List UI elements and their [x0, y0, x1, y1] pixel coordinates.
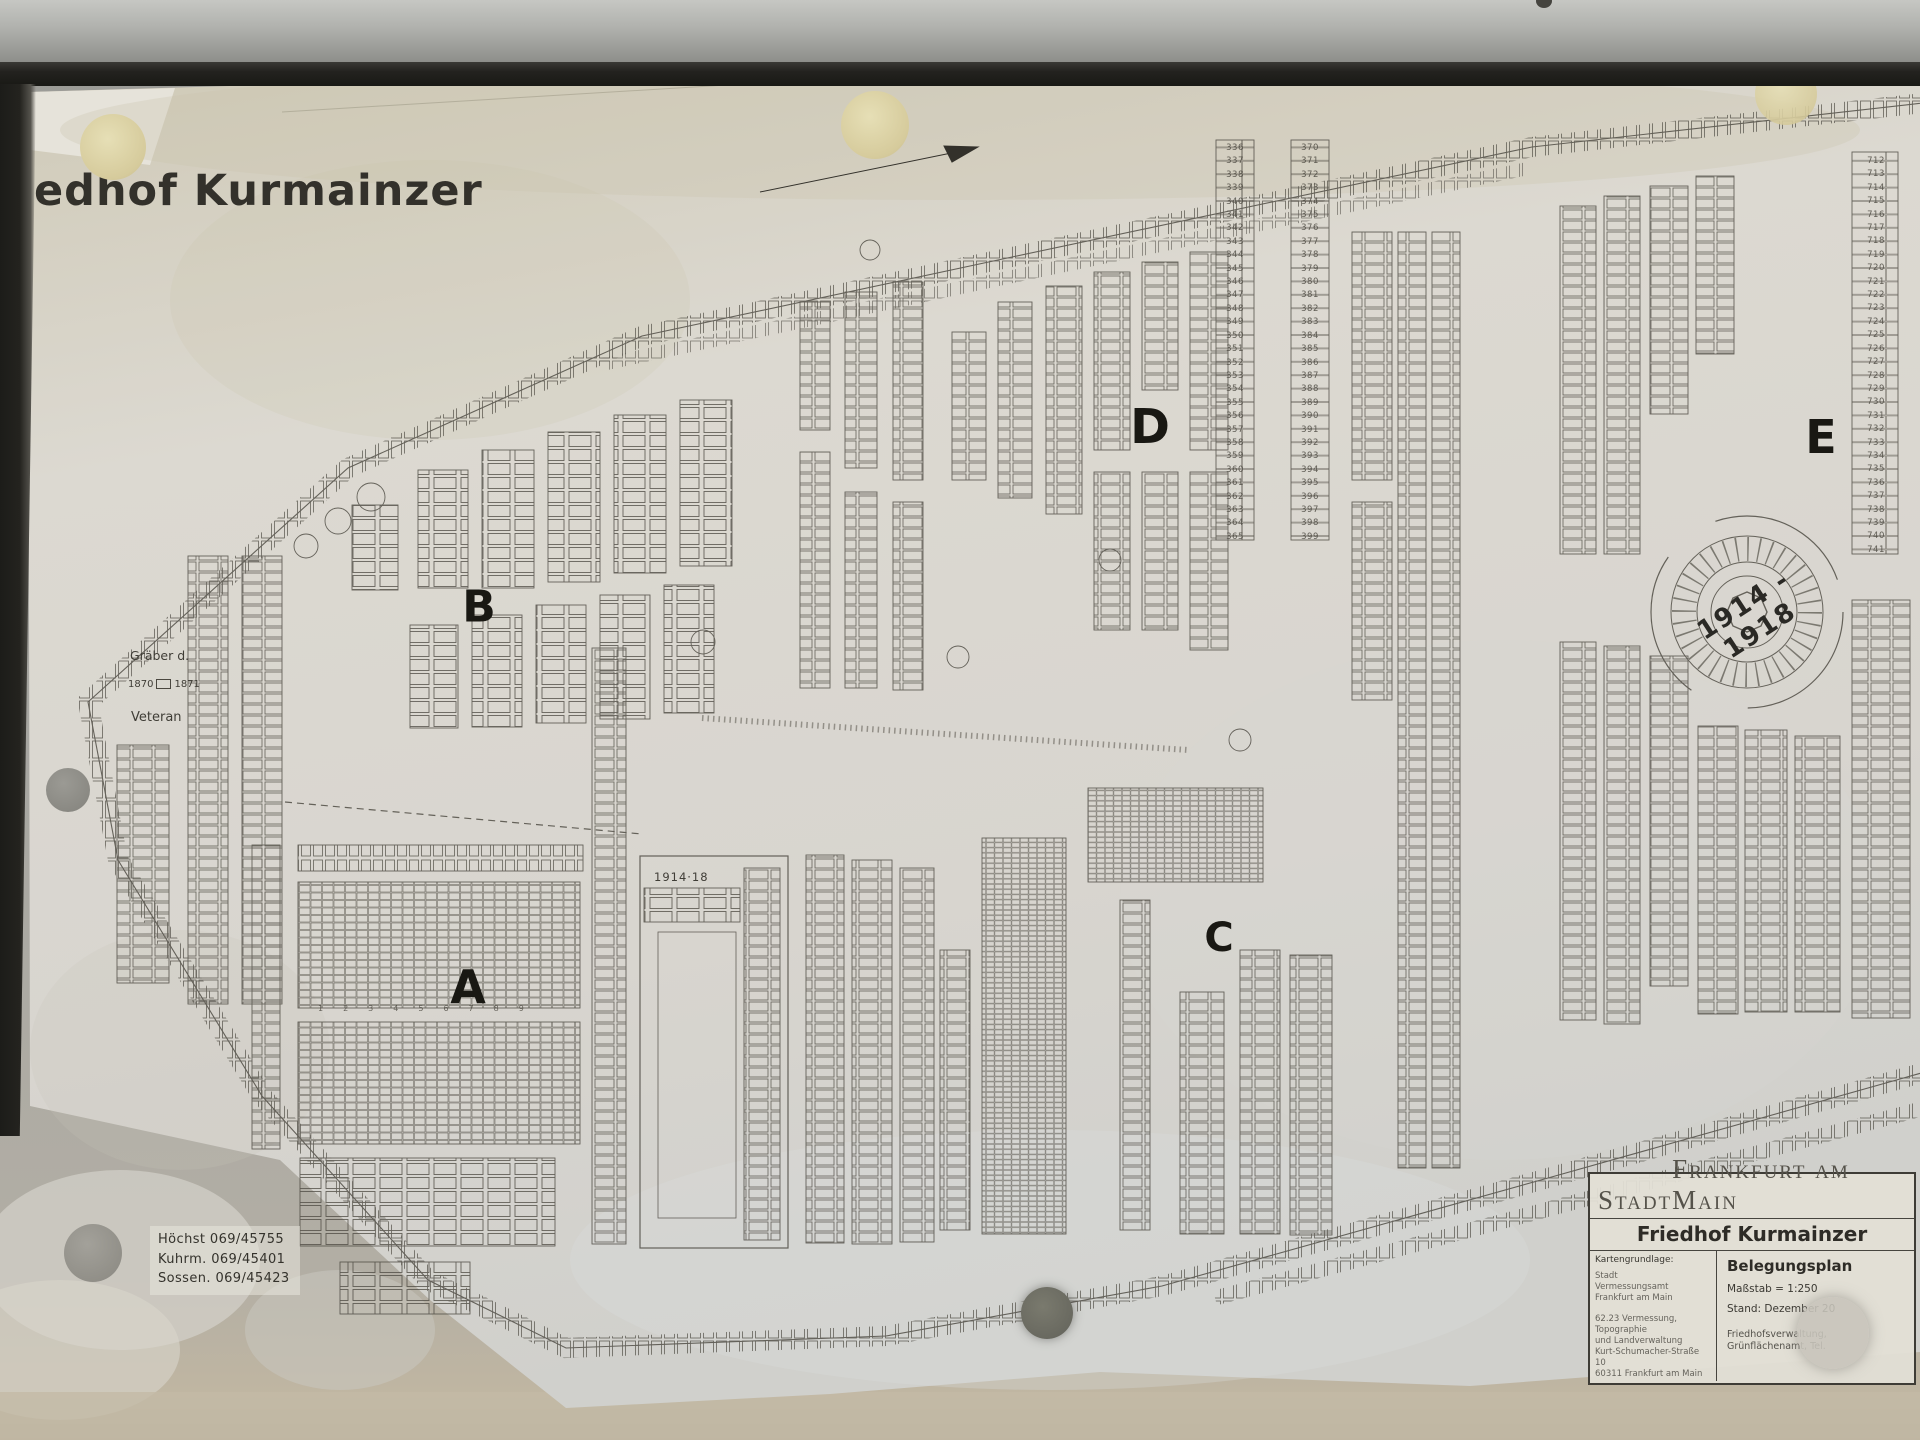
plot-number-column-1: 336 337 338 339 340 341 342 343 344 345 … — [1218, 142, 1252, 544]
legend-map-basis-label: Kartengrundlage: — [1595, 1255, 1711, 1265]
legend-map-basis-lines: Stadt Vermessungsamt Frankfurt am Main — [1595, 1271, 1711, 1304]
adhesive-pad-top-left — [80, 114, 146, 180]
section-label-c: C — [1204, 915, 1233, 961]
legend-map-basis: Kartengrundlage: Stadt Vermessungsamt Fr… — [1590, 1251, 1717, 1381]
war-graves-label: 1914·18 — [654, 870, 709, 884]
veteran-label: Veteran — [131, 710, 182, 725]
veteran-years: 18701871 — [128, 679, 200, 690]
phone-numbers-block: Höchst 069/45755 Kuhrm. 069/45401 Sossen… — [150, 1226, 300, 1295]
case-frame-bar — [0, 62, 1920, 86]
plot-number-column-3: 712 713 714 715 716 717 718 719 720 721 … — [1858, 155, 1894, 557]
section-a-row-numbers: 123456789 — [318, 1004, 544, 1013]
year-from: 1870 — [128, 679, 153, 690]
magnet-on-legend — [1797, 1297, 1869, 1369]
section-label-b: B — [462, 582, 496, 633]
year-to: 1871 — [174, 679, 199, 690]
section-label-d: D — [1130, 399, 1170, 455]
legend-city-word1: Stadt — [1598, 1185, 1672, 1216]
legend-body: Kartengrundlage: Stadt Vermessungsamt Fr… — [1590, 1250, 1914, 1381]
grave-symbol — [156, 679, 171, 689]
legend-scale: Maßstab = 1:250 — [1727, 1283, 1904, 1295]
legend-subtitle: Friedhof Kurmainzer — [1590, 1218, 1914, 1250]
plot-number-column-2: 370 371 372 373 374 375 376 377 378 379 … — [1293, 142, 1327, 544]
legend-city-word2: Frankfurt am Main — [1672, 1154, 1902, 1216]
legend-box: Stadt Frankfurt am Main Friedhof Kurmain… — [1588, 1172, 1916, 1385]
legend-plan-type: Belegungsplan — [1727, 1257, 1904, 1275]
adhesive-pad-top-center — [841, 91, 909, 159]
magnet-left — [46, 768, 90, 812]
magnet-bottom-center — [1021, 1287, 1073, 1339]
section-label-e: E — [1805, 410, 1836, 464]
magnet-bottom-left — [64, 1224, 122, 1282]
legend-city-row: Stadt Frankfurt am Main — [1590, 1174, 1914, 1218]
graeber-label: Gräber d. — [130, 648, 189, 663]
case-top-rail — [0, 0, 1920, 62]
legend-dept-lines: 62.23 Vermessung, Topographie und Landve… — [1595, 1314, 1711, 1380]
display-case-photo: edhof Kurmainzer A B C D E 1914 - 1918 1… — [0, 0, 1920, 1440]
